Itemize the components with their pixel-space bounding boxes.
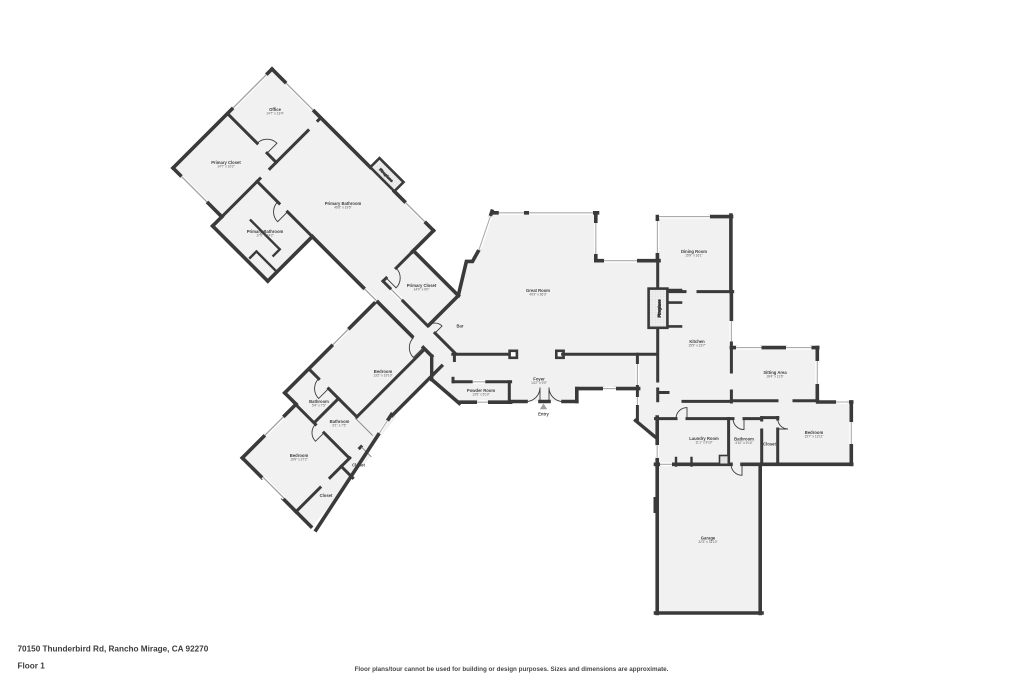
svg-text:14'7" x 13'4": 14'7" x 13'4"	[266, 112, 283, 116]
svg-text:46'6" x 19'5": 46'6" x 19'5"	[334, 206, 351, 210]
svg-text:13'5" x 5'10": 13'5" x 5'10"	[472, 392, 489, 396]
svg-text:Closet: Closet	[352, 463, 365, 468]
svg-text:15'9" x 23'7": 15'9" x 23'7"	[688, 344, 705, 348]
svg-text:13'2" x 19'10": 13'2" x 19'10"	[373, 374, 392, 378]
svg-text:Floor 1: Floor 1	[18, 661, 46, 670]
svg-text:17'0" x 14'2": 17'0" x 14'2"	[256, 234, 273, 238]
svg-text:5'4" x 7'5": 5'4" x 7'5"	[312, 404, 326, 408]
svg-text:Entry: Entry	[538, 412, 549, 417]
svg-text:15'7" x 13'11": 15'7" x 13'11"	[804, 435, 823, 439]
svg-text:11'1" x 9'10": 11'1" x 9'10"	[695, 441, 712, 445]
svg-text:15'9" x 16'1": 15'9" x 16'1"	[685, 254, 702, 258]
svg-text:14'2" x 9'9": 14'2" x 9'9"	[531, 381, 547, 385]
svg-text:19'9" x 27'2": 19'9" x 27'2"	[290, 458, 307, 462]
svg-text:Closet: Closet	[320, 493, 333, 498]
svg-text:22'3" x 31'10": 22'3" x 31'10"	[698, 540, 717, 544]
svg-text:Fireplace: Fireplace	[657, 299, 661, 317]
svg-text:70150 Thunderbird Rd, Rancho M: 70150 Thunderbird Rd, Rancho Mirage, CA …	[18, 645, 209, 654]
svg-text:Floor plans/tour cannot be use: Floor plans/tour cannot be used for buil…	[355, 666, 669, 673]
svg-text:4'10" x 9'10": 4'10" x 9'10"	[735, 441, 752, 445]
svg-text:Closet: Closet	[763, 442, 776, 447]
svg-text:14'0" x 9'0": 14'0" x 9'0"	[414, 288, 430, 292]
svg-text:6'1" x 7'5": 6'1" x 7'5"	[333, 424, 347, 428]
svg-text:18'4" x 11'6": 18'4" x 11'6"	[766, 375, 783, 379]
svg-text:14'7" x 16'2": 14'7" x 16'2"	[217, 165, 234, 169]
svg-text:49'3" x 36'3": 49'3" x 36'3"	[529, 293, 546, 297]
svg-text:Bar: Bar	[457, 324, 464, 329]
